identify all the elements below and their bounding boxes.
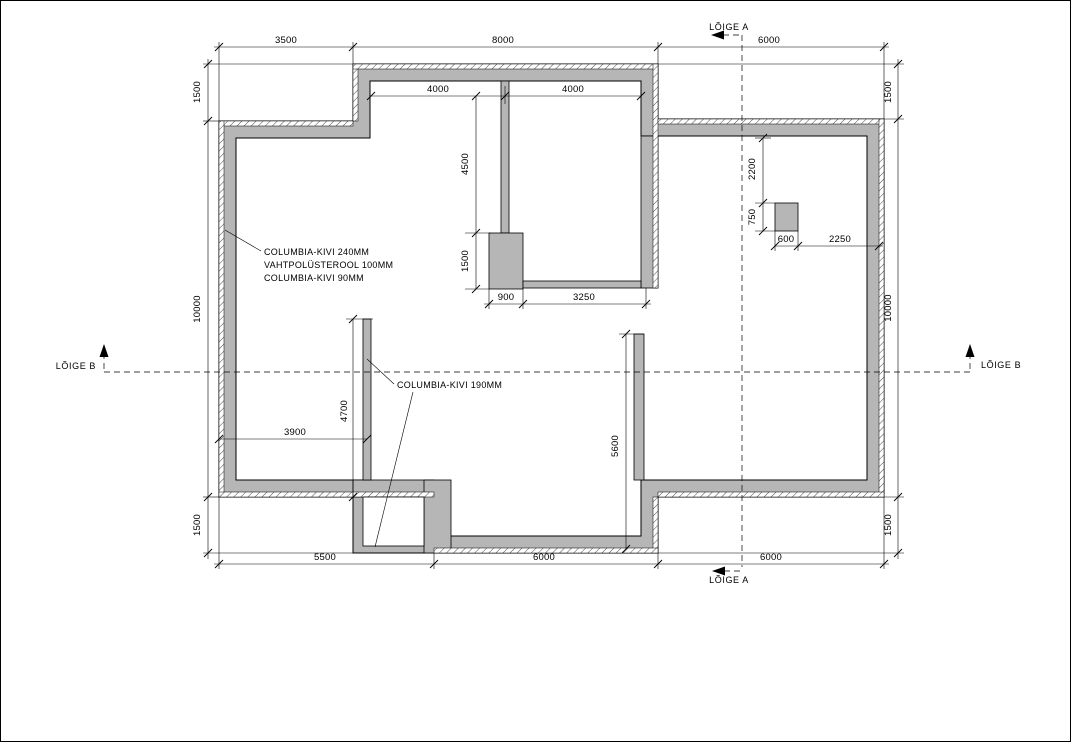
porch-interior	[363, 497, 424, 546]
partition-wall-right	[634, 334, 644, 480]
section-a-label-bottom: LÕIGE A	[709, 575, 749, 585]
dim-chimney-height: 1500	[460, 250, 471, 272]
exterior-wall-spec-line2: VAHTPOLÜSTEROOL 100MM	[264, 260, 393, 270]
dim-pillar-to-wall: 2250	[829, 234, 851, 245]
dim-chimney-to-wall: 3250	[573, 292, 595, 303]
dim-pillar-offset: 2200	[747, 158, 758, 180]
dim-left-middle: 10000	[192, 295, 203, 322]
section-b-arrow-right	[966, 344, 975, 357]
dim-hall-width: 3900	[284, 427, 306, 438]
dim-partition-left-length: 4700	[339, 400, 350, 422]
dim-room-left-width: 4000	[427, 84, 449, 95]
dim-partition-right-length: 5600	[610, 435, 621, 457]
section-b-label-left: LÕIGE B	[56, 361, 96, 371]
dim-top-middle: 8000	[492, 35, 514, 46]
partition-wall-left	[363, 319, 371, 480]
dim-pillar-height: 750	[747, 209, 758, 225]
section-b-arrow-left	[100, 344, 109, 357]
dim-right-middle: 10000	[883, 294, 894, 321]
exterior-wall-spec-line3: COLUMBIA-KIVI 90MM	[264, 273, 364, 283]
pillar-block	[775, 203, 798, 231]
exterior-wall-inner-outline	[236, 81, 867, 536]
chimney-block	[489, 233, 523, 289]
dim-room-right-width: 4000	[562, 84, 584, 95]
section-line-a: LÕIGE A LÕIGE A	[709, 22, 749, 585]
dim-top-right: 6000	[758, 35, 780, 46]
dim-bottom-right: 6000	[760, 552, 782, 563]
interior-walls	[363, 81, 798, 480]
dim-left-lower: 1500	[192, 514, 203, 536]
exterior-wall-spec-line1: COLUMBIA-KIVI 240MM	[264, 247, 369, 257]
dim-bottom-middle: 6000	[533, 552, 555, 563]
dim-room-depth: 4500	[460, 153, 471, 175]
dim-pillar-width: 600	[778, 234, 794, 245]
dim-top-left: 3500	[275, 35, 297, 46]
drawing-sheet: 3500 8000 6000 1500 10000 1500 1500 1000…	[0, 0, 1071, 742]
dim-right-upper: 1500	[883, 81, 894, 103]
section-b-label-right: LÕIGE B	[981, 360, 1021, 370]
dim-left-upper: 1500	[192, 81, 203, 103]
dim-right-lower: 1500	[883, 514, 894, 536]
porch-right-wall	[424, 480, 451, 553]
foundation-plan-svg: 3500 8000 6000 1500 10000 1500 1500 1000…	[1, 1, 1070, 741]
section-a-label-top: LÕIGE A	[709, 22, 749, 32]
dim-chimney-width: 900	[498, 292, 514, 303]
interior-wall-spec: COLUMBIA-KIVI 190MM	[397, 380, 502, 390]
exterior-wall-spec-callout: COLUMBIA-KIVI 240MM VAHTPOLÜSTEROOL 100M…	[225, 230, 393, 283]
dim-bottom-left: 5500	[314, 552, 336, 563]
room-bottom-wall	[523, 281, 641, 288]
